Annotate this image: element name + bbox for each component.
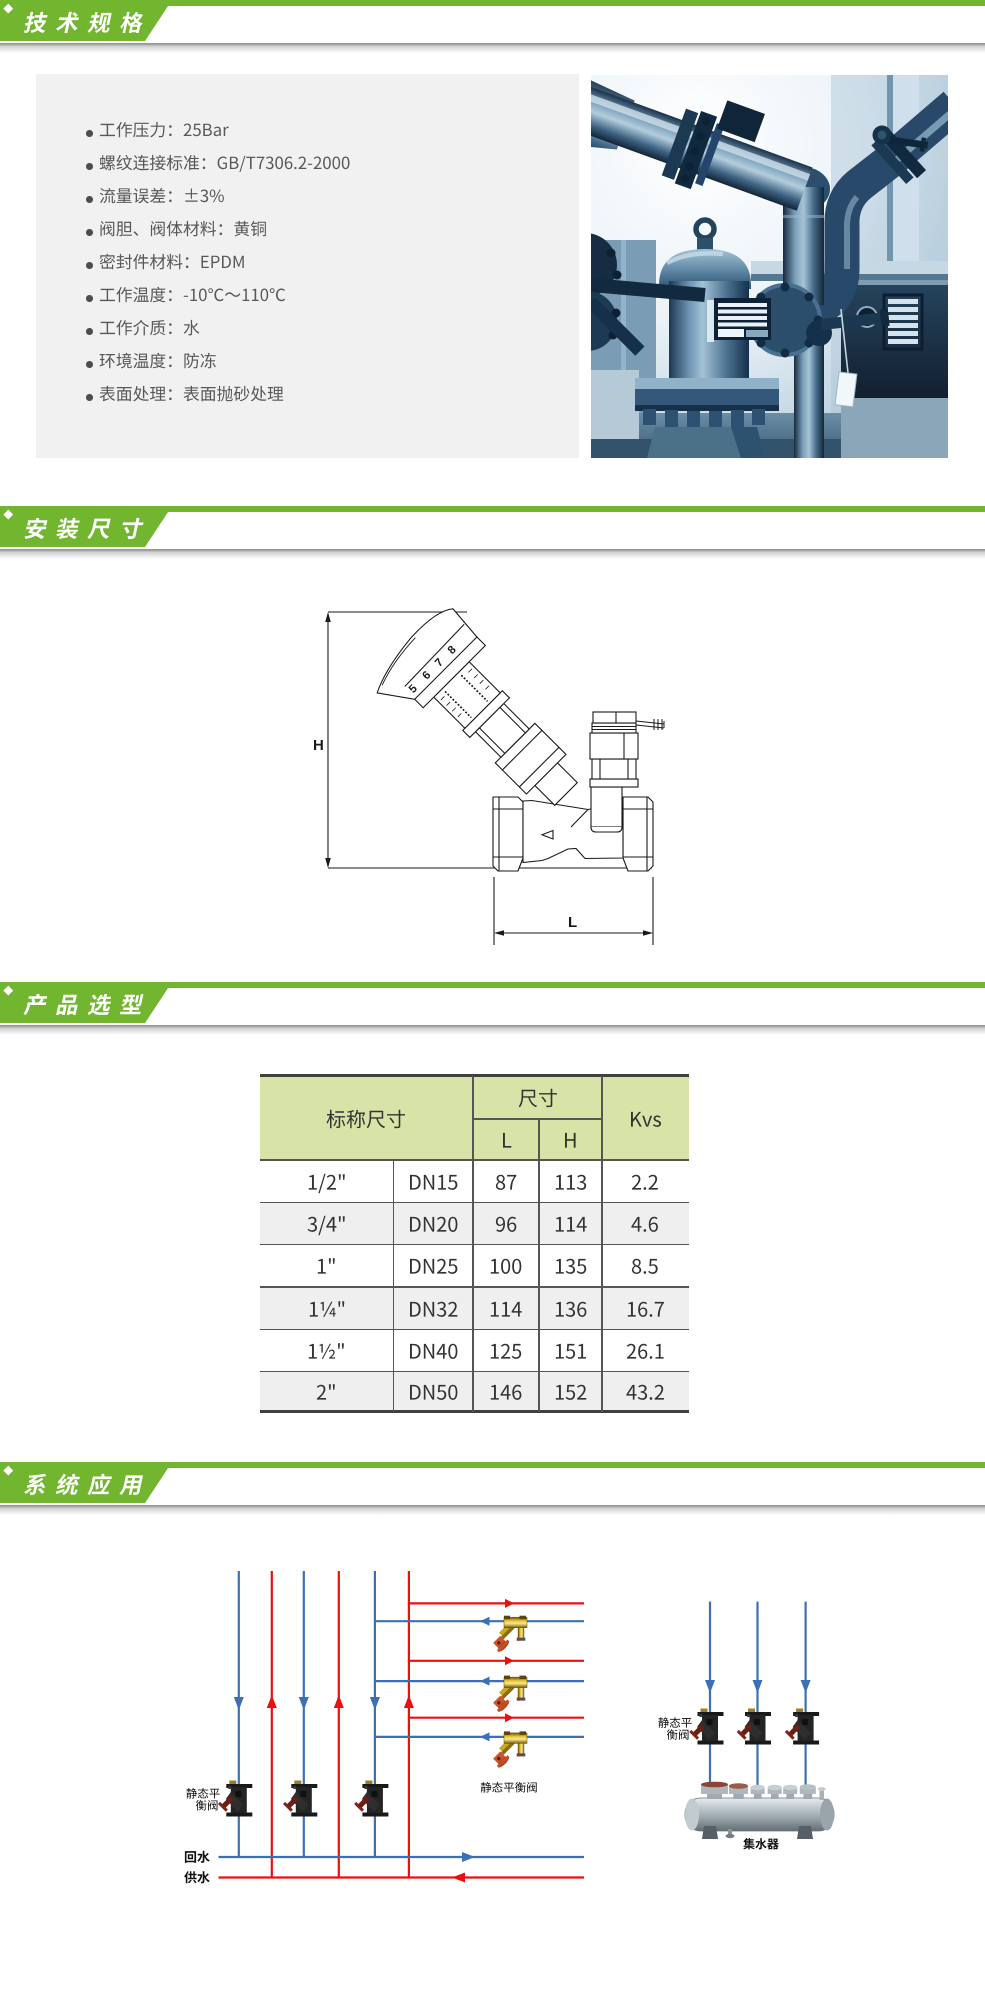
svg-text:H: H [313,737,324,754]
svg-text:L: L [568,914,577,931]
